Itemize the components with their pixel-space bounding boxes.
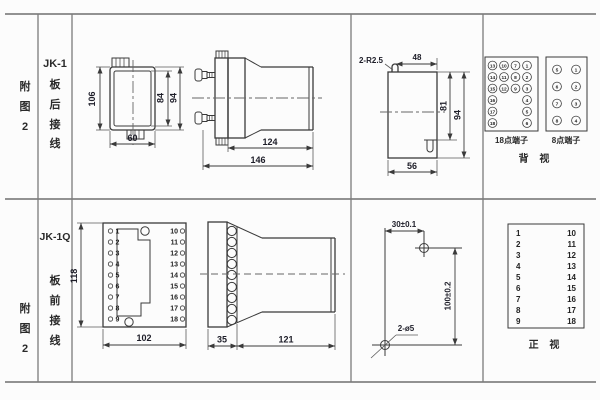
- cutout-outline: [388, 72, 437, 158]
- dim-plate-depth: 35: [217, 335, 227, 345]
- dim-cutout-bottom-width: 56: [407, 161, 417, 171]
- table-cell: 5: [516, 273, 521, 282]
- pin-number: 5: [556, 67, 559, 73]
- pin-number: 8: [556, 118, 559, 124]
- terminal-screw-row: [227, 226, 236, 324]
- pin-number: 10: [501, 63, 507, 69]
- rear-side-view: 124 146: [192, 51, 322, 170]
- terminal-number: 14: [170, 273, 178, 280]
- pin-number: 4: [575, 118, 578, 124]
- fig-index-char: 附: [20, 79, 31, 93]
- fig-index-char: 图: [20, 100, 31, 113]
- slot-radius-note: 2-R2.5: [359, 56, 384, 65]
- front-terminals-left: [108, 229, 112, 321]
- table-cell: 13: [567, 262, 576, 271]
- terminal-number: 3: [116, 251, 120, 258]
- pin-number: 17: [490, 109, 496, 115]
- terminal-number: 6: [116, 284, 120, 291]
- front-terminals-right: [180, 229, 184, 321]
- fig-index-char: 附: [20, 301, 31, 315]
- dim-cutout-top-width: 48: [413, 53, 422, 62]
- terminal-number: 10: [170, 229, 178, 236]
- dim-body-depth: 124: [262, 137, 277, 147]
- terminal-block-8pt-label: 8点端子: [552, 135, 580, 145]
- terminal-pins-18: [488, 61, 531, 127]
- terminal-block-18pt: 13 10 7 1 14 11 8 2 15 12 9 3 16 4 17 5 …: [485, 57, 538, 145]
- pin-number: 2: [526, 75, 529, 81]
- dim-case-height: 106: [87, 91, 97, 106]
- table-cell: 4: [516, 262, 521, 271]
- row2-figure-index: 附 图 2: [20, 301, 31, 355]
- technical-drawing-sheet: 附 图 2 JK-1 板 后 接 线 106 84 94 60: [0, 0, 600, 400]
- dim-case-outer-height: 94: [169, 93, 179, 103]
- pin-number: 3: [526, 86, 529, 92]
- rear-case-view: 106 84 94 60: [87, 58, 184, 148]
- terminal-number: 7: [116, 295, 120, 302]
- fig-index-char: 图: [20, 322, 31, 335]
- table-cell: 17: [567, 306, 576, 315]
- table-cell: 10: [567, 229, 576, 238]
- pin-number: 16: [490, 98, 496, 104]
- pin-number: 15: [490, 86, 496, 92]
- pin-number: 18: [490, 121, 496, 127]
- pin-number: 2: [575, 84, 578, 90]
- table-cell: 7: [516, 295, 521, 304]
- table-cell: 16: [567, 295, 576, 304]
- variant-char: 接: [50, 117, 61, 131]
- mounting-screw: [195, 69, 215, 81]
- pin-number: 3: [575, 101, 578, 107]
- dim-panel-height: 118: [69, 269, 79, 284]
- table-cell: 14: [567, 273, 576, 282]
- panel-cutout-view: 48 2-R2.5 81 94 56: [359, 53, 470, 176]
- pin-number: 9: [514, 86, 517, 92]
- front-view-label: 正 视: [529, 338, 564, 351]
- pin-number: 7: [514, 63, 517, 69]
- front-plate: [208, 222, 227, 327]
- terminal-number: 13: [170, 262, 178, 269]
- terminal-block-outline: [546, 57, 587, 131]
- drawing-canvas: 附 图 2 JK-1 板 后 接 线 106 84 94 60: [0, 0, 600, 400]
- table-cell: 2: [516, 240, 521, 249]
- terminal-number: 18: [170, 317, 178, 324]
- terminal-block-8pt: 5 1 6 2 7 3 8 4 8点端子: [546, 57, 587, 145]
- drilling-plan: 30±0.1 100±0.2 2-ø5: [371, 220, 462, 358]
- variant-char: 线: [50, 333, 61, 347]
- front-panel-view: 1 2 3 4 5 6 7 8 9 10 11 12 13 14 15 16 1…: [69, 223, 186, 349]
- terminal-number: 2: [116, 240, 120, 247]
- hole-diameter-note: 2-ø5: [398, 324, 415, 333]
- table-cell: 6: [516, 284, 521, 293]
- table-cell: 18: [567, 317, 576, 326]
- case-inner-outline: [114, 71, 151, 126]
- terminal-pins-8: [553, 65, 581, 125]
- terminal-strip-top: [112, 58, 129, 67]
- terminal-number: 4: [116, 262, 120, 269]
- pin-number: 13: [490, 63, 496, 69]
- mounting-hole: [141, 227, 149, 235]
- pin-number: 1: [526, 63, 529, 69]
- dim-case-inner-height: 84: [156, 93, 166, 103]
- pin-number: 5: [526, 109, 529, 115]
- top-mounting-slot: [392, 64, 398, 72]
- terminal-number: 15: [170, 284, 178, 291]
- dim-hole-spacing-y: 100±0.2: [444, 281, 453, 310]
- pin-number: 6: [526, 121, 529, 127]
- variant-char: 前: [50, 293, 61, 307]
- terminal-number: 1: [116, 229, 120, 236]
- dim-hole-spacing-x: 30±0.1: [392, 220, 417, 229]
- dim-panel-width: 102: [136, 333, 151, 343]
- table-cell: 15: [567, 284, 576, 293]
- variant-char: 线: [50, 136, 61, 150]
- variant-char: 板: [50, 273, 62, 287]
- dim-body-depth: 121: [278, 335, 293, 345]
- variant-name: JK-1Q: [40, 231, 71, 243]
- pin-number: 8: [514, 75, 517, 81]
- pin-number: 6: [556, 84, 559, 90]
- terminal-number-table: 1 10 2 11 3 12 4 13 5 14 6 15 7 16 8 17 …: [508, 224, 584, 351]
- terminal-number: 5: [116, 273, 120, 280]
- terminal-number: 12: [170, 251, 178, 258]
- case-outline: [110, 67, 155, 130]
- table-cell: 9: [516, 317, 521, 326]
- table-cell: 12: [567, 251, 576, 260]
- rear-view-label: 背 视: [519, 152, 554, 165]
- terminal-number: 11: [171, 240, 179, 247]
- variant-char: 板: [50, 77, 62, 91]
- dim-cutout-inner-height: 81: [439, 101, 449, 111]
- terminal-number: 9: [116, 317, 120, 324]
- fig-index-char: 2: [22, 121, 28, 133]
- dim-case-width: 60: [127, 133, 137, 143]
- pin-number: 4: [526, 98, 529, 104]
- dim-total-depth: 146: [250, 155, 265, 165]
- table-cell: 1: [516, 229, 521, 238]
- terminal-block-18pt-label: 18点端子: [495, 135, 528, 145]
- terminal-number: 8: [116, 306, 120, 313]
- row1-figure-index: 附 图 2: [20, 79, 31, 133]
- terminal-number: 17: [170, 306, 178, 313]
- pin-number: 12: [501, 86, 507, 92]
- row2-variant-label: JK-1Q 板 前 接 线: [40, 231, 71, 347]
- fig-index-char: 2: [22, 343, 28, 355]
- variant-name: JK-1: [43, 58, 67, 70]
- table-cell: 11: [568, 240, 577, 249]
- variant-char: 后: [50, 97, 61, 111]
- table-cell: 3: [516, 251, 521, 260]
- terminal-number: 16: [170, 295, 178, 302]
- row1-variant-label: JK-1 板 后 接 线: [43, 58, 67, 150]
- pin-number: 7: [556, 101, 559, 107]
- variant-char: 接: [50, 313, 61, 327]
- pin-number: 1: [575, 67, 578, 73]
- table-cell: 8: [516, 306, 521, 315]
- mounting-screw: [195, 112, 215, 124]
- front-side-view: 35 121: [200, 222, 345, 350]
- dim-cutout-outer-height: 94: [453, 110, 463, 120]
- pin-number: 14: [490, 75, 496, 81]
- inner-cutout-outline: [117, 229, 150, 316]
- mounting-hole: [125, 318, 133, 326]
- bottom-mounting-slot: [427, 140, 433, 152]
- pin-number: 11: [501, 75, 506, 81]
